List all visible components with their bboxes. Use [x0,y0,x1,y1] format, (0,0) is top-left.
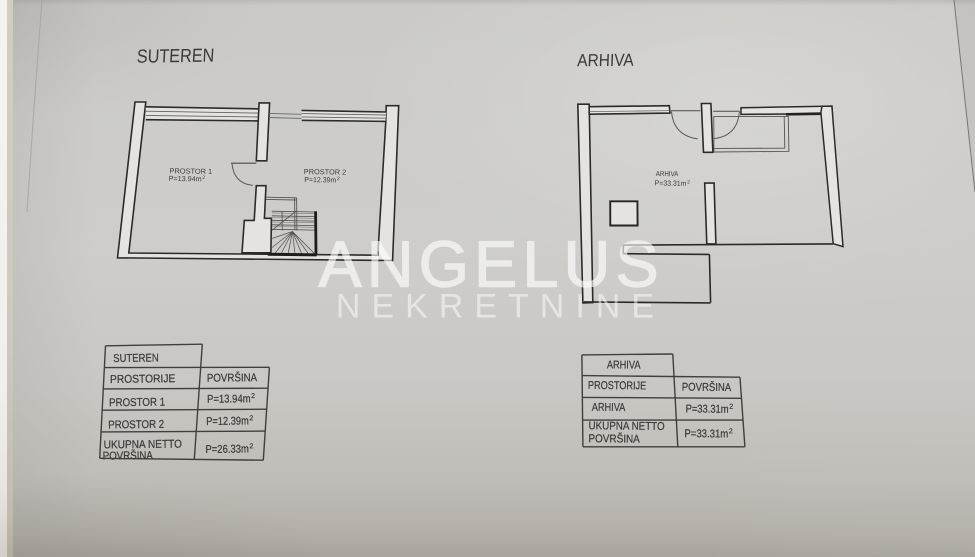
svg-text:P=13.94m: P=13.94m [169,174,202,184]
svg-text:2: 2 [729,428,733,435]
svg-text:POVRŠINA: POVRŠINA [207,371,258,385]
svg-text:2: 2 [687,179,690,185]
svg-text:P=13.94m: P=13.94m [207,393,251,406]
svg-text:ARHIVA: ARHIVA [607,359,641,371]
svg-text:POVRŠINA: POVRŠINA [103,449,154,463]
svg-text:PROSTORIJE: PROSTORIJE [110,373,176,386]
svg-text:SUTEREN: SUTEREN [136,46,215,68]
svg-text:2: 2 [202,175,205,181]
svg-text:PROSTOR 1: PROSTOR 1 [109,397,165,410]
svg-text:2: 2 [729,404,733,411]
svg-text:P=12.39m: P=12.39m [206,415,249,428]
svg-text:2: 2 [337,176,340,182]
svg-text:ARHIVA: ARHIVA [592,402,626,414]
svg-text:P=33.31m: P=33.31m [686,403,729,415]
svg-text:P=12.39m: P=12.39m [304,175,336,185]
svg-text:ARHIVA: ARHIVA [577,50,635,71]
svg-text:SUTEREN: SUTEREN [113,352,159,365]
svg-text:P=33.31m: P=33.31m [654,178,686,188]
svg-text:POVRŠINA: POVRŠINA [682,381,732,394]
svg-text:2: 2 [249,415,253,422]
svg-text:ARHIVA: ARHIVA [656,169,679,178]
svg-text:PROSTORIJE: PROSTORIJE [588,380,647,393]
svg-text:P=26.33m: P=26.33m [205,443,249,456]
svg-text:2: 2 [251,393,255,400]
svg-text:NEKRETNINE: NEKRETNINE [336,288,665,326]
svg-text:UKUPNA NETTO: UKUPNA NETTO [589,420,665,433]
svg-text:POVRŠINA: POVRŠINA [588,432,640,445]
svg-text:P=33.31m: P=33.31m [684,428,728,440]
svg-text:PROSTOR 2: PROSTOR 2 [108,419,164,432]
svg-text:2: 2 [249,443,253,450]
